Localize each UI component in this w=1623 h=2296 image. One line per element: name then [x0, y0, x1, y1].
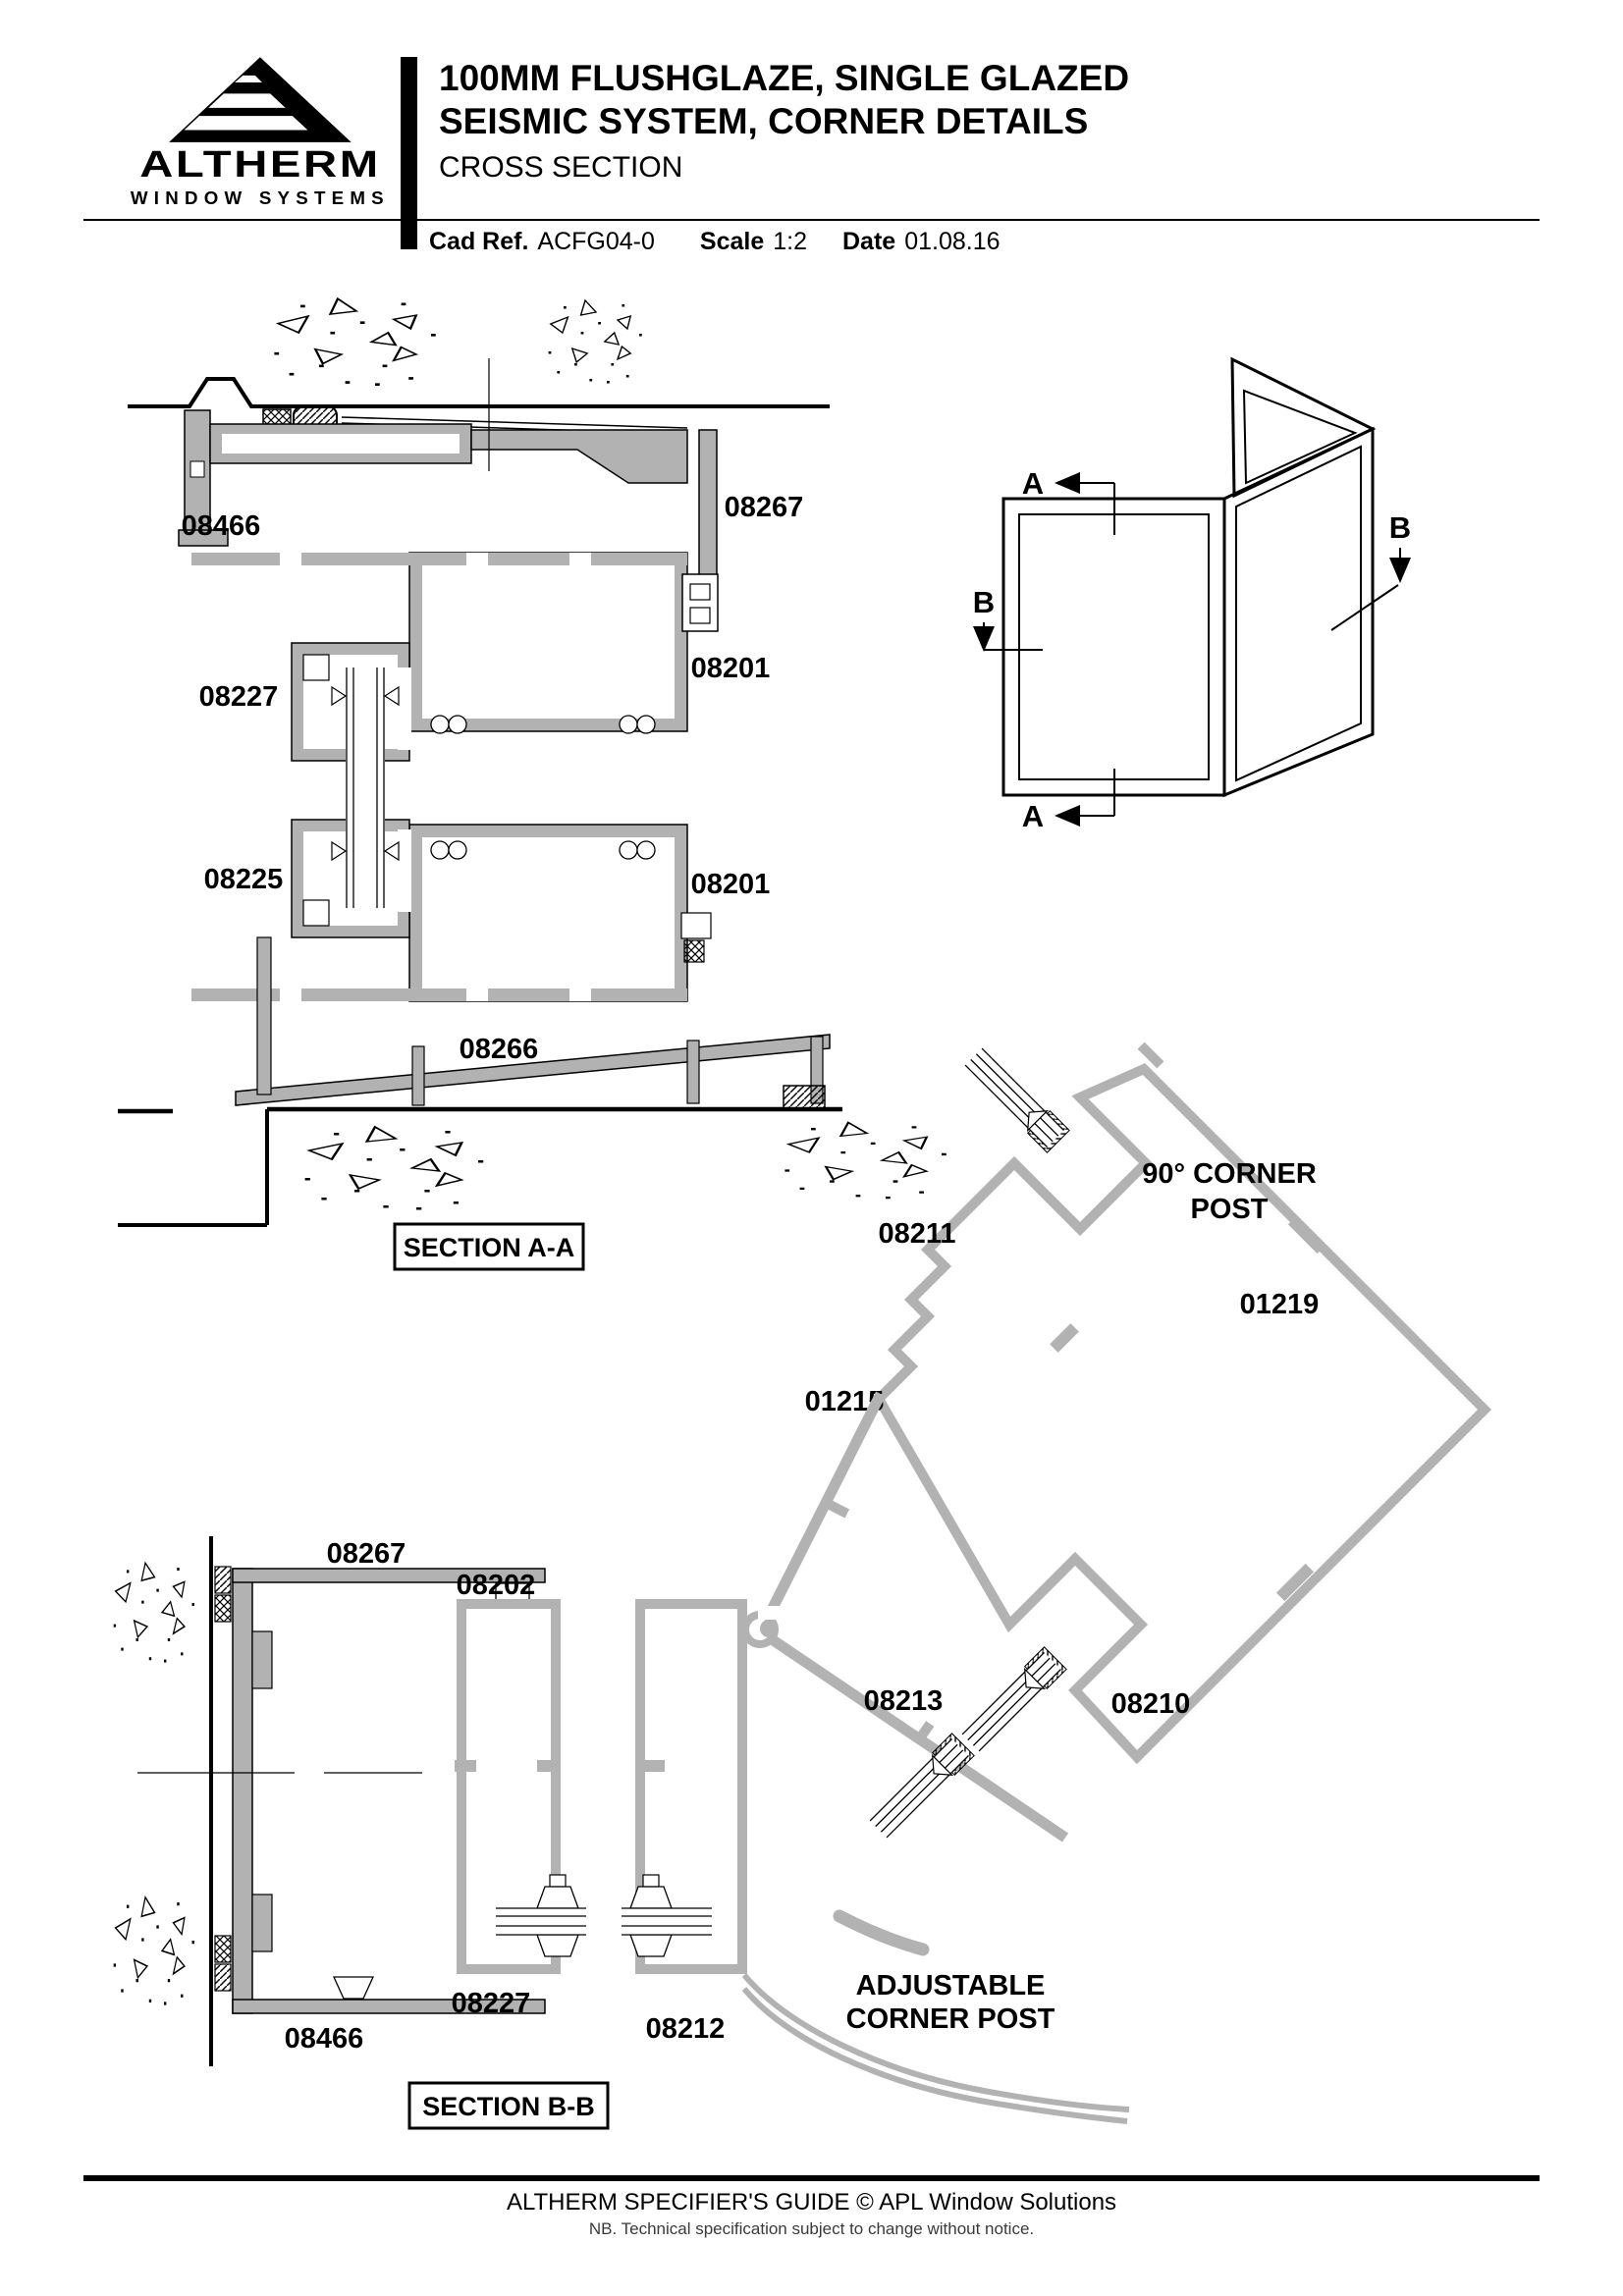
- soffit-line: [128, 379, 830, 406]
- logo-brand-text: ALTHERM: [139, 143, 380, 186]
- part-label-08225: 08225: [204, 864, 284, 895]
- part-label-08466: 08466: [182, 510, 261, 542]
- footer-guide-line: ALTHERM SPECIFIER'S GUIDE © APL Window S…: [0, 2189, 1623, 2216]
- altherm-logo: ALTHERM WINDOW SYSTEMS: [126, 49, 401, 211]
- logo-tagline-text: WINDOW SYSTEMS: [131, 187, 390, 208]
- sheet-title-line1: 100MM FLUSHGLAZE, SINGLE GLAZED: [439, 57, 1129, 100]
- date-value: 01.08.16: [904, 228, 1000, 255]
- part-label-08266: 08266: [460, 1034, 539, 1065]
- section-marker-a-bottom: A: [1022, 799, 1044, 833]
- isometric-corner-diagram: A A B B: [973, 359, 1411, 833]
- part-label-bb-08202: 08202: [457, 1570, 536, 1601]
- sheet-meta-row: Cad Ref.ACFG04-0Scale1:2Date01.08.16: [429, 228, 1001, 256]
- header-rule: [83, 219, 1540, 221]
- scale-value: 1:2: [773, 228, 807, 255]
- part-label-08227: 08227: [199, 681, 279, 713]
- part-label-08201-upper: 08201: [691, 653, 771, 684]
- adjustable-post-title-line1: ADJUSTABLE: [856, 1970, 1046, 2002]
- sheet-subtitle: CROSS SECTION: [439, 150, 1129, 185]
- cad-ref-value: ACFG04-0: [537, 228, 654, 255]
- cad-ref-label: Cad Ref.: [429, 228, 528, 255]
- section-bb-caption: SECTION B-B: [422, 2092, 595, 2121]
- footer-rule: [83, 2175, 1540, 2181]
- footer-disclaimer: NB. Technical specification subject to c…: [0, 2219, 1623, 2239]
- section-marker-b-right: B: [1389, 510, 1411, 545]
- adjustable-post-title-line2: CORNER POST: [846, 2003, 1055, 2035]
- adjustable-corner-post-drawing: 08213 08212 ADJUSTABLE CORNER POST: [646, 1394, 1129, 2121]
- part-label-bb-08267: 08267: [327, 1538, 406, 1570]
- sheet-title-line2: SEISMIC SYSTEM, CORNER DETAILS: [439, 100, 1129, 143]
- spec-sheet-page: 08466 08267 08227 08201 08225 08201 0826…: [0, 0, 1623, 2296]
- part-label-08201-lower: 08201: [691, 869, 771, 900]
- title-block: 100MM FLUSHGLAZE, SINGLE GLAZED SEISMIC …: [439, 57, 1129, 186]
- corner-post-90-drawing: 08211 01219 01215 08210 90° CORNER POST: [805, 1042, 1485, 1757]
- corner-post-90-title-line2: POST: [1191, 1194, 1269, 1225]
- date-label: Date: [842, 228, 895, 255]
- part-label-01219: 01219: [1240, 1289, 1320, 1320]
- section-marker-a-top: A: [1022, 466, 1044, 501]
- section-aa-drawing: 08466 08267 08227 08201 08225 08201 0826…: [118, 298, 947, 1269]
- part-label-bb-08466: 08466: [285, 2023, 364, 2055]
- corner-post-90-title-line1: 90° CORNER: [1142, 1158, 1317, 1190]
- section-aa-caption: SECTION A-A: [404, 1233, 575, 1262]
- scale-label: Scale: [700, 228, 764, 255]
- drawing-canvas: 08466 08267 08227 08201 08225 08201 0826…: [0, 0, 1623, 2296]
- part-label-08212: 08212: [646, 2013, 726, 2045]
- part-label-08213: 08213: [864, 1685, 944, 1717]
- part-label-bb-08227: 08227: [452, 1988, 531, 2019]
- part-label-08211: 08211: [878, 1218, 955, 1250]
- part-label-08210: 08210: [1111, 1688, 1191, 1720]
- part-label-08267: 08267: [725, 492, 804, 523]
- section-marker-b-left: B: [973, 585, 995, 619]
